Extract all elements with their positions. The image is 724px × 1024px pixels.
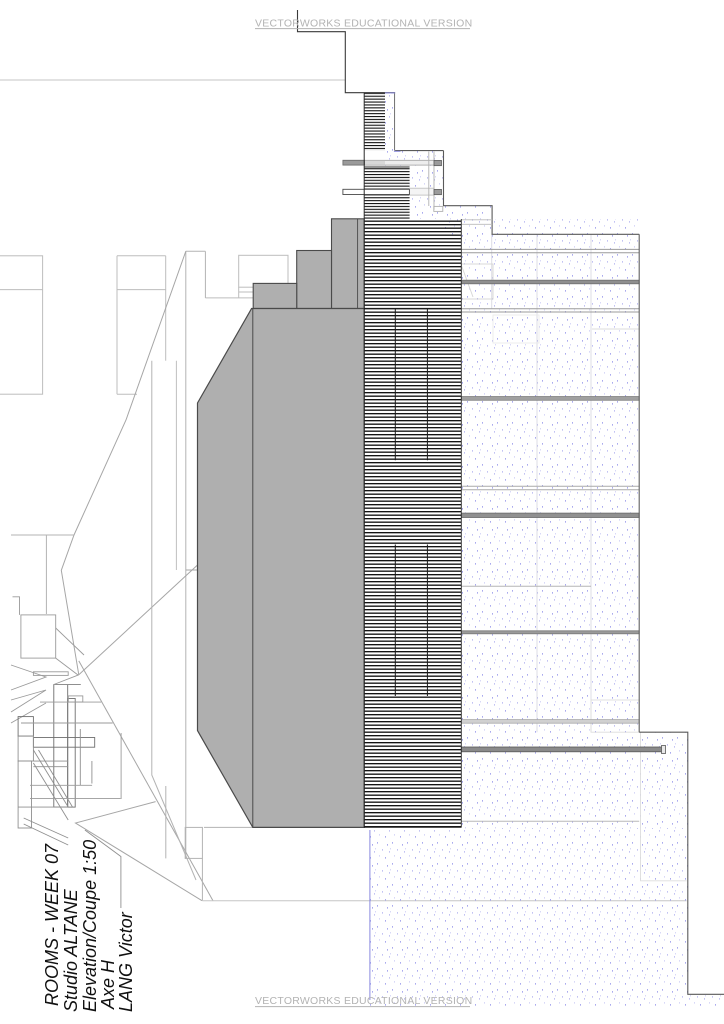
svg-text:Studio ALTANE: Studio ALTANE bbox=[61, 888, 81, 1012]
svg-text:VECTORWORKS EDUCATIONAL VERSIO: VECTORWORKS EDUCATIONAL VERSION bbox=[255, 995, 472, 1007]
svg-text:ROOMS - WEEK 07: ROOMS - WEEK 07 bbox=[42, 843, 62, 1006]
svg-text:VECTORWORKS EDUCATIONAL VERSIO: VECTORWORKS EDUCATIONAL VERSION bbox=[255, 17, 472, 29]
svg-text:Axe H: Axe H bbox=[98, 959, 118, 1010]
svg-text:Elevation/Coupe 1:50: Elevation/Coupe 1:50 bbox=[80, 840, 100, 1012]
svg-text:LANG Victor: LANG Victor bbox=[116, 911, 136, 1012]
